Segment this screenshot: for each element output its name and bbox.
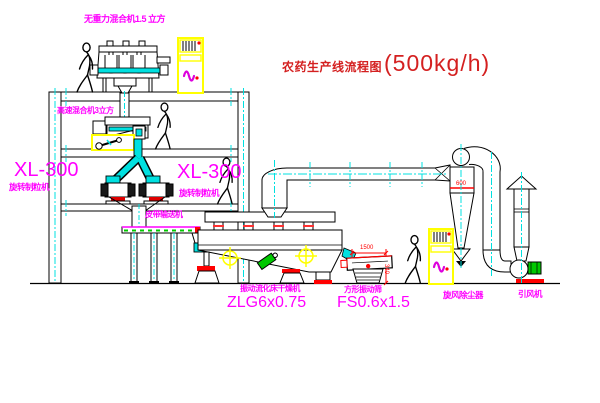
control-cabinet-ground bbox=[429, 229, 453, 284]
belt-conveyor-label: 皮带输送机 bbox=[145, 211, 183, 219]
rotary-granulator-middle bbox=[139, 176, 173, 204]
high-speed-mixer-label: 高速混合机3立方 bbox=[57, 107, 113, 115]
title-capacity: (500kg/h) bbox=[384, 50, 490, 77]
diagram-title: 农药生产线流程图 (500kg/h) bbox=[282, 50, 490, 77]
high-speed-mixer-drive bbox=[92, 135, 134, 150]
granulator-middle-name: 旋转制粒机 bbox=[179, 189, 219, 198]
granulator-middle-model: XL-300 bbox=[177, 162, 242, 182]
control-cabinet-roof bbox=[178, 38, 203, 93]
cyclone-width-dimension: 600 bbox=[456, 181, 466, 187]
fluid-bed-dryer bbox=[195, 212, 342, 284]
pesticide-line-flow-diagram: 无重力混合机1.5 立方 农药生产线流程图 (500kg/h) 高速混合机3立方… bbox=[0, 0, 600, 403]
weightless-mixer bbox=[90, 41, 170, 93]
weightless-mixer-label: 无重力混合机1.5 立方 bbox=[84, 15, 165, 24]
fluid-bed-dryer-label: 振动流化床干燥机 bbox=[240, 285, 300, 293]
person-ground bbox=[405, 236, 420, 283]
cyclone-label: 旋风除尘器 bbox=[443, 291, 483, 300]
granulator-left-model: XL-300 bbox=[14, 160, 79, 180]
sieve-length-dimension: 1500 bbox=[360, 245, 373, 251]
person-floor2 bbox=[156, 103, 171, 149]
title-text: 农药生产线流程图 bbox=[282, 58, 382, 75]
fan-label: 引风机 bbox=[518, 290, 542, 299]
square-sieve-label: 方形振动筛 bbox=[344, 286, 382, 294]
rotary-granulator-left bbox=[101, 176, 135, 204]
cyclone-dust-collector bbox=[450, 144, 511, 276]
square-sieve-model: FS0.6x1.5 bbox=[337, 295, 410, 311]
sieve-height-dimension: 340 bbox=[383, 264, 389, 274]
exhaust-duct bbox=[262, 160, 450, 218]
fluid-bed-dryer-model: ZLG6x0.75 bbox=[227, 295, 306, 311]
belt-conveyor bbox=[122, 227, 204, 284]
granulator-left-name: 旋转制粒机 bbox=[9, 183, 49, 192]
